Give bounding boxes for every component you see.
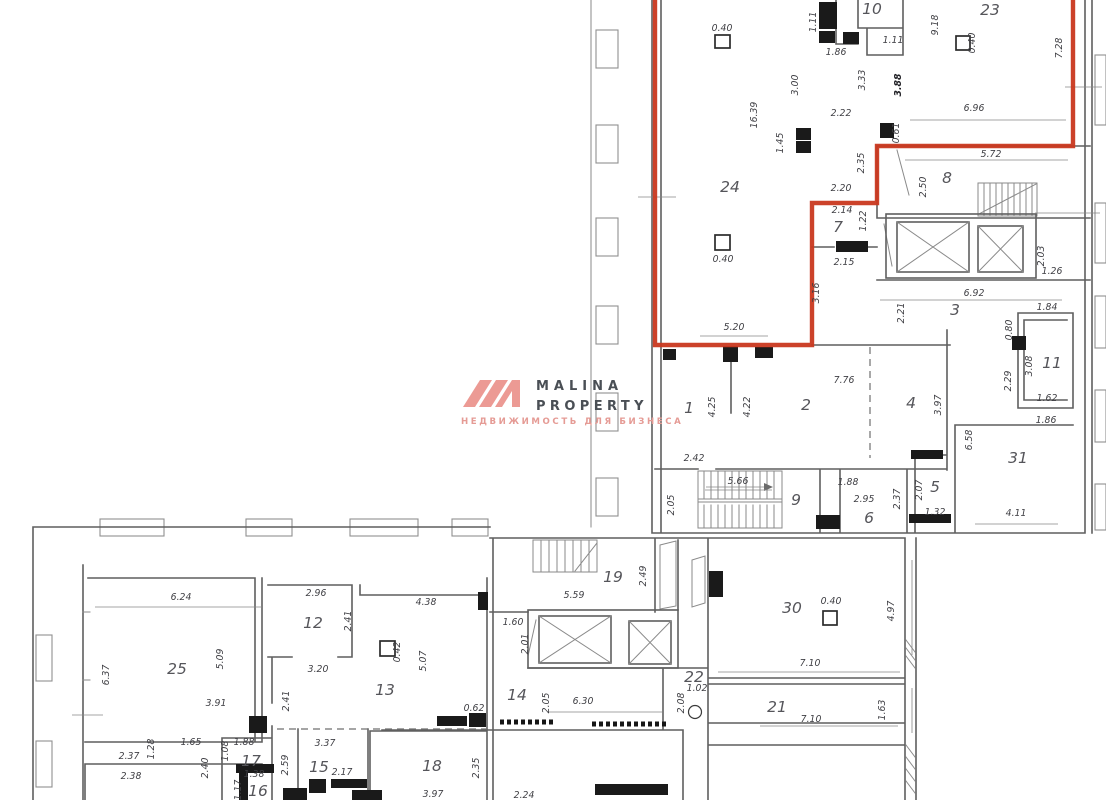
dimension-label: 2.15 (834, 257, 855, 268)
dimension-label: 1.11 (808, 12, 819, 33)
room-number: 8 (942, 169, 952, 187)
elevator-shaft-lower (528, 610, 678, 668)
dimension-label: 1.84 (1037, 302, 1058, 313)
dimension-label: 1.86 (1036, 415, 1057, 426)
dimension-label: 1.38 (244, 769, 265, 780)
dimension-label: 5.20 (724, 322, 745, 333)
dimension-label: 3.88 (893, 73, 904, 96)
dimension-label: 0.62 (464, 703, 485, 714)
room-number: 14 (507, 686, 527, 704)
dimension-label: 5.66 (728, 476, 749, 487)
dimension-label: 7.10 (800, 658, 821, 669)
dimension-label: 2.95 (854, 494, 875, 505)
dimension-label: 0.40 (713, 254, 734, 265)
dimension-label: 1.88 (234, 737, 255, 748)
stairs-room-19 (533, 540, 597, 572)
dimension-label: 2.24 (514, 790, 535, 800)
dimension-label: 2.17 (332, 767, 353, 778)
room-number: 3 (950, 301, 960, 319)
dimension-label: 3.37 (315, 738, 336, 749)
elevator-shaft-upper (886, 214, 1036, 278)
dimension-label: 2.96 (306, 588, 327, 599)
room-number: 23 (980, 1, 1000, 19)
sink-symbol (689, 706, 702, 719)
dimension-label: 3.08 (1024, 356, 1035, 377)
room-number: 18 (422, 757, 442, 775)
dimension-label: 2.41 (343, 611, 354, 632)
dimension-label: 2.41 (281, 691, 292, 712)
dimension-label: 1.45 (775, 133, 786, 154)
dimension-label: 2.37 (892, 489, 903, 510)
stairs-upper-right (978, 183, 1037, 216)
dimension-label: 2.22 (831, 108, 852, 119)
floor-plan-drawing: MALINA PROPERTY НЕДВИЖИМОСТЬ ДЛЯ БИЗНЕСА… (0, 0, 1106, 800)
dimension-label: 0.40 (967, 33, 978, 54)
dimension-label: 3.91 (206, 698, 227, 709)
dimension-label: 2.08 (676, 693, 687, 714)
dimension-label: 2.37 (119, 751, 140, 762)
room-number: 30 (782, 599, 802, 617)
dimension-label: 2.40 (200, 758, 211, 779)
dimension-label: 0.61 (891, 123, 902, 144)
room-number: 2 (801, 396, 811, 414)
dimension-label: 5.09 (215, 649, 226, 670)
dimension-label: 2.50 (918, 177, 929, 198)
dimension-label: 1.28 (146, 739, 157, 760)
room-number: 11 (1042, 354, 1062, 372)
dimension-label: 1.22 (858, 211, 869, 232)
dimension-label: 1.11 (883, 35, 904, 46)
dimension-label: 1.08 (220, 741, 231, 762)
dimension-label: 4.11 (1006, 508, 1027, 519)
dimension-label: 2.14 (832, 205, 853, 216)
dimension-label: 9.18 (930, 15, 941, 36)
room-number: 6 (864, 509, 874, 527)
dimension-label: 1.02 (687, 683, 708, 694)
dimension-label: 2.29 (1003, 371, 1014, 392)
dimension-label: 0.80 (1004, 320, 1015, 341)
dimension-label: 1.63 (877, 700, 888, 721)
dimension-label: 2.38 (121, 771, 142, 782)
dimension-label: 5.72 (981, 149, 1002, 160)
dimension-label: 2.20 (831, 183, 852, 194)
room-number: 31 (1008, 449, 1028, 467)
dimension-label: 2.21 (896, 303, 907, 324)
dimension-label: 4.25 (707, 397, 718, 418)
dimension-label: 3.16 (811, 283, 822, 304)
dimension-label: 1.88 (838, 477, 859, 488)
dimension-label: 6.24 (171, 592, 192, 603)
dimension-label: 2.59 (280, 755, 291, 776)
dimension-label: 3.00 (790, 75, 801, 96)
dimension-label: 1.17 (233, 780, 244, 800)
dimension-label: 1.26 (1042, 266, 1063, 277)
room-number: 12 (303, 614, 323, 632)
dimension-label: 5.59 (564, 590, 585, 601)
dimension-label: 4.22 (742, 397, 753, 418)
dimension-label: 2.03 (1036, 246, 1047, 267)
room-number: 1 (684, 399, 694, 417)
dimension-label: 6.92 (964, 288, 985, 299)
dimension-label: 2.01 (520, 634, 531, 655)
room-number: 4 (906, 394, 916, 412)
room-number: 9 (791, 491, 801, 509)
brand-tagline: НЕДВИЖИМОСТЬ ДЛЯ БИЗНЕСА (461, 417, 683, 427)
dimension-label: 7.76 (834, 375, 855, 386)
dimension-label: 2.35 (856, 153, 867, 174)
dimension-label: 0.40 (712, 23, 733, 34)
dimension-label: 3.97 (423, 789, 444, 800)
room-number: 13 (375, 681, 395, 699)
room-number: 16 (248, 782, 268, 800)
dimension-label: 2.35 (471, 758, 482, 779)
dimension-label: 4.97 (886, 601, 897, 622)
dimension-label: 4.38 (416, 597, 437, 608)
dimension-label: 5.07 (418, 651, 429, 672)
dimension-label: 7.10 (801, 714, 822, 725)
dimension-label: 0.40 (821, 596, 842, 607)
dimension-label: 2.05 (666, 495, 677, 516)
dimension-label: 1.86 (826, 47, 847, 58)
room-number: 17 (241, 752, 261, 770)
malina-logo-mark (463, 380, 520, 407)
room-number: 7 (833, 218, 843, 236)
brand-watermark: MALINA PROPERTY НЕДВИЖИМОСТЬ ДЛЯ БИЗНЕСА (461, 379, 683, 427)
dimension-label: 2.49 (638, 566, 649, 587)
dimension-label: 1.60 (503, 617, 524, 628)
dimension-label: 3.97 (933, 395, 944, 416)
room-number: 24 (720, 178, 740, 196)
room-number: 25 (167, 660, 187, 678)
brand-line1: MALINA (536, 379, 623, 394)
dimension-label: 2.42 (684, 453, 705, 464)
room-number: 5 (930, 478, 940, 496)
room-number: 15 (309, 758, 329, 776)
dimension-label: 2.05 (541, 693, 552, 714)
brand-line2: PROPERTY (536, 399, 648, 414)
dimension-label: 3.20 (308, 664, 329, 675)
dimension-label: 16.39 (749, 102, 760, 129)
dimension-label: 2.07 (914, 480, 925, 501)
room-number: 21 (767, 698, 787, 716)
dimension-label: 1.62 (1037, 393, 1058, 404)
dimension-label: 6.58 (964, 430, 975, 451)
dimension-label: 1.65 (181, 737, 202, 748)
dimension-label: 1.32 (925, 507, 946, 518)
dimension-label: 3.33 (857, 70, 868, 91)
room-number: 10 (862, 0, 882, 18)
dimension-label: 7.28 (1054, 38, 1065, 59)
dimension-label: 6.30 (573, 696, 594, 707)
dimension-label: 6.96 (964, 103, 985, 114)
dimension-label: 6.37 (101, 665, 112, 686)
room-number: 19 (603, 568, 623, 586)
floor-plan-page: MALINA PROPERTY НЕДВИЖИМОСТЬ ДЛЯ БИЗНЕСА… (0, 0, 1106, 800)
dimension-label: 0.42 (392, 642, 403, 663)
